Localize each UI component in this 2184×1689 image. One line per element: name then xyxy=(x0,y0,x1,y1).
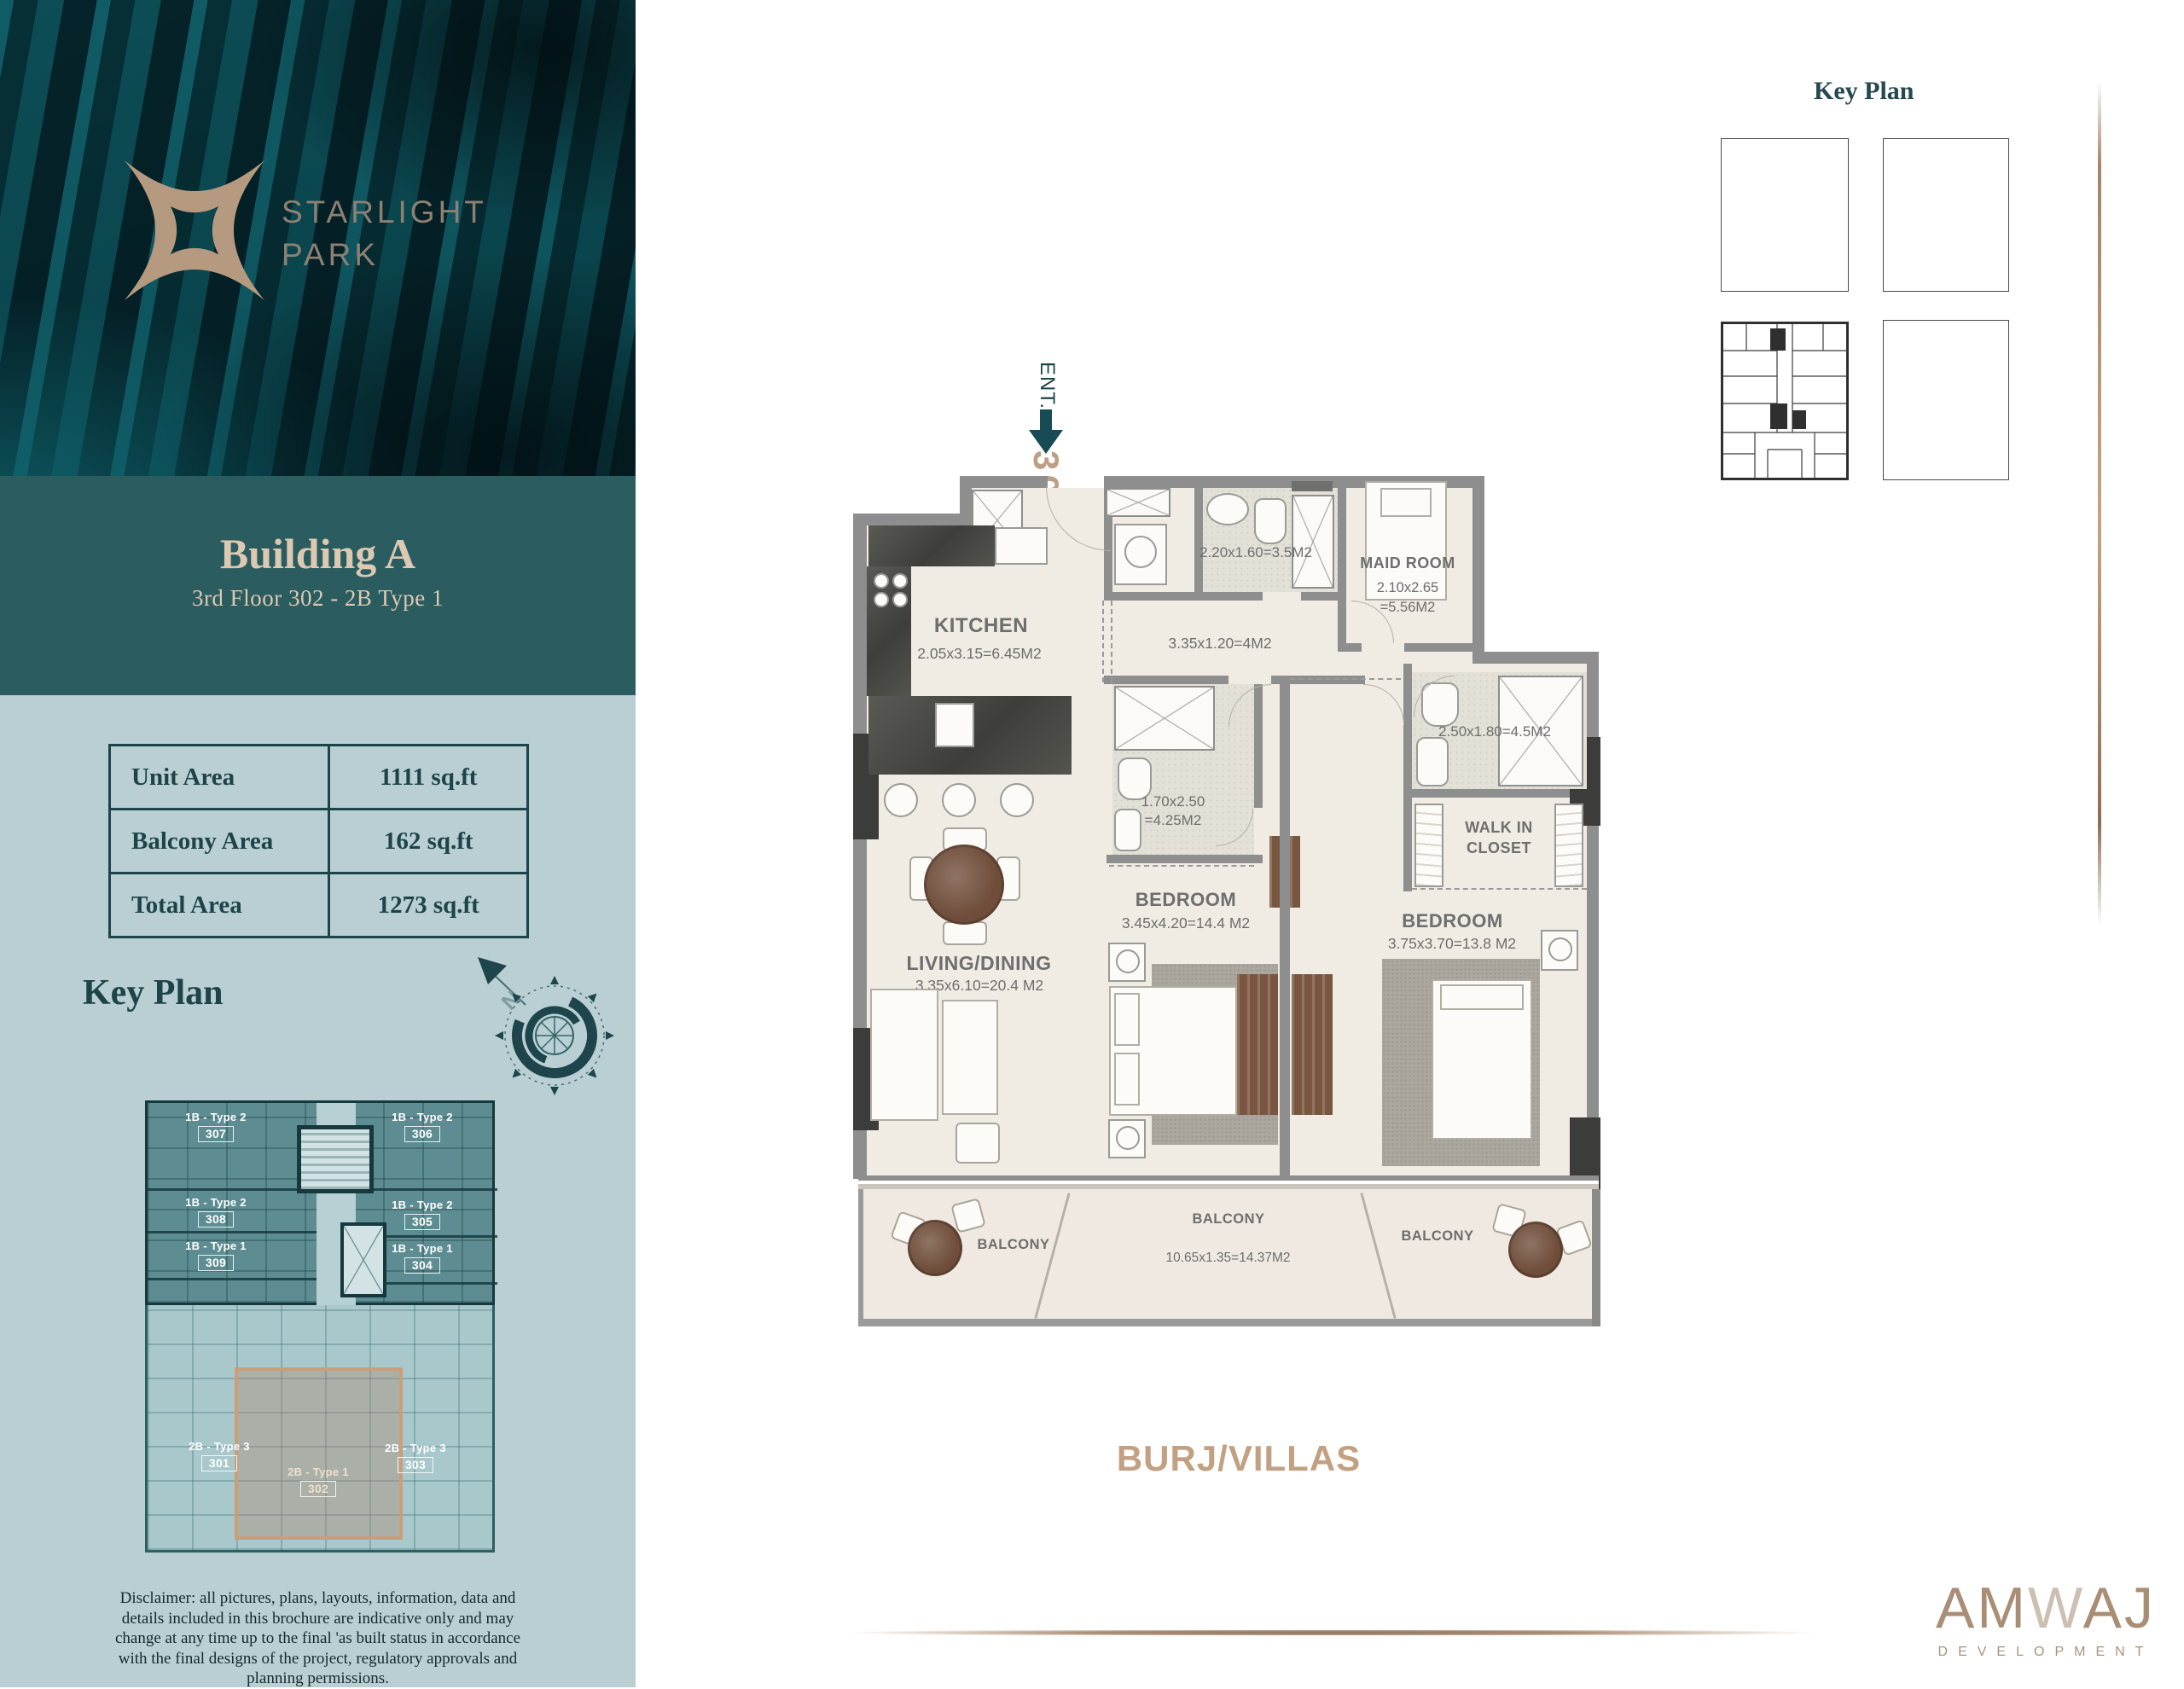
maid-room-dims1: 2.10x2.65 xyxy=(1352,580,1463,596)
wall xyxy=(1472,476,1484,664)
keyplan-wall xyxy=(148,1231,317,1233)
bathroom-top-dims: 2.20x1.60=3.5M2 xyxy=(1188,544,1324,561)
pillow xyxy=(1440,984,1524,1010)
sidebar-keyplan-heading: Key Plan xyxy=(83,972,224,1013)
balcony-center-name: BALCONY xyxy=(1177,1211,1280,1228)
keyplan-unit-308: 1B - Type 2 308 xyxy=(169,1196,263,1228)
wall xyxy=(1403,798,1412,891)
wardrobe xyxy=(1414,804,1443,887)
wardrobe-wood xyxy=(1237,974,1278,1115)
shower-icon xyxy=(1292,495,1334,589)
unit-number: 304 xyxy=(404,1257,440,1274)
wall xyxy=(1104,592,1263,601)
stool xyxy=(1000,783,1034,817)
unit-type: 1B - Type 2 xyxy=(185,1196,247,1209)
pillow xyxy=(1114,1053,1140,1106)
developer-name-part: AM xyxy=(1936,1576,2028,1640)
unit-type: 1B - Type 2 xyxy=(392,1199,453,1211)
dashed-line xyxy=(1111,601,1112,682)
brand-line2: PARK xyxy=(282,234,487,276)
balcony-rail xyxy=(858,1319,1599,1326)
unit-type: 2B - Type 3 xyxy=(385,1442,446,1454)
left-sidebar: STARLIGHT PARK Building A 3rd Floor 302 … xyxy=(0,0,636,1687)
unit-number: 301 xyxy=(201,1455,237,1471)
bedroom1-name: BEDROOM xyxy=(1126,889,1246,911)
compass-north-label: N xyxy=(497,985,526,1014)
unit-number: 305 xyxy=(404,1214,440,1230)
bedroom2-dims: 3.75x3.70=13.8 M2 xyxy=(1375,935,1529,953)
balcony-center-dims: 10.65x1.35=14.37M2 xyxy=(1145,1251,1311,1266)
wall xyxy=(853,514,972,525)
washer-drum xyxy=(1124,536,1157,568)
wall xyxy=(1403,664,1412,798)
hallway-dims: 3.35x1.20=4M2 xyxy=(1152,635,1288,653)
dining-table xyxy=(924,844,1004,925)
area-row-label: Balcony Area xyxy=(110,810,329,874)
keyplan-unit-302: 2B - Type 1 302 xyxy=(271,1466,365,1497)
brand-line1: STARLIGHT xyxy=(282,191,487,234)
keyplan-mini-floorplan xyxy=(1721,322,1849,480)
wall xyxy=(1412,789,1587,798)
right-keyplan-heading: Key Plan xyxy=(1814,77,1914,106)
bathroom-master-dims2: =4.25M2 xyxy=(1122,812,1224,829)
unit-type: 1B - Type 2 xyxy=(185,1111,247,1123)
unit-number: 308 xyxy=(198,1211,234,1228)
keyplan-wall xyxy=(356,1188,497,1191)
keyplan-building-outline-4 xyxy=(1883,320,2009,480)
wall xyxy=(1104,676,1228,684)
star-logo-icon xyxy=(92,128,297,333)
decorative-vertical-rule xyxy=(2098,81,2101,926)
developer-tagline: DEVELOPMENT xyxy=(1916,1645,2175,1660)
closet-shaft xyxy=(1106,488,1170,517)
dining-chair xyxy=(943,921,987,945)
unit-number: 307 xyxy=(198,1126,234,1142)
balcony-rail xyxy=(1592,1189,1600,1326)
developer-name-w: W xyxy=(2028,1576,2083,1640)
sofa-chaise xyxy=(942,1000,998,1115)
wardrobe xyxy=(1554,804,1583,887)
wall xyxy=(960,476,972,525)
kitchen-counter xyxy=(868,525,995,566)
stool xyxy=(942,783,976,817)
dashed-line xyxy=(1102,601,1104,682)
unit-floorplan: ENT. 302 2.20x1.6 xyxy=(853,471,1604,1332)
keyplan-building-active xyxy=(1721,322,1849,480)
wall xyxy=(1280,676,1290,1179)
lamp-icon xyxy=(1116,949,1140,973)
keyplan-unit-309: 1B - Type 1 309 xyxy=(169,1239,263,1271)
keyplan-stair-core xyxy=(297,1125,374,1193)
stove-burner xyxy=(892,592,908,607)
wall xyxy=(1404,643,1472,652)
unit-type: 1B - Type 2 xyxy=(392,1111,453,1123)
living-dining-name: LIVING/DINING xyxy=(904,952,1054,975)
maid-pillow xyxy=(1380,488,1432,517)
unit-number: 309 xyxy=(198,1255,234,1271)
walkin-closet-name1: WALK IN xyxy=(1443,819,1554,837)
wall xyxy=(1194,476,1203,599)
keyplan-building-outline-2 xyxy=(1883,138,2009,292)
kitchen-name: KITCHEN xyxy=(900,614,1062,638)
developer-logo: AMWAJ DEVELOPMENT xyxy=(1916,1575,2175,1660)
keyplan-unit-304: 1B - Type 1 304 xyxy=(375,1242,469,1274)
keyplan-wall xyxy=(148,1188,317,1191)
page-subtitle: 3rd Floor 302 - 2B Type 1 xyxy=(0,585,636,612)
unit-number: 306 xyxy=(404,1126,440,1142)
unit-number: 302 xyxy=(300,1481,336,1497)
sink-icon xyxy=(1206,493,1249,525)
balcony-table xyxy=(908,1220,962,1276)
stove-burner xyxy=(874,573,889,589)
balcony-right-name: BALCONY xyxy=(1386,1228,1489,1245)
wall xyxy=(972,476,1048,488)
door-leaf-wood xyxy=(1290,836,1300,908)
hero-image: STARLIGHT PARK xyxy=(0,0,636,476)
shower-icon xyxy=(1114,686,1215,751)
bathroom-right-dims: 2.50x1.80=4.5M2 xyxy=(1426,723,1563,740)
area-row-value: 162 sq.ft xyxy=(329,810,528,874)
armchair xyxy=(955,1123,1000,1164)
lamp-icon xyxy=(1116,1126,1140,1150)
area-row-value: 1273 sq.ft xyxy=(329,874,528,937)
dashed-line xyxy=(1109,865,1254,867)
unit-type: 1B - Type 1 xyxy=(392,1242,453,1255)
wall xyxy=(1107,855,1263,863)
area-table: Unit Area 1111 sq.ft Balcony Area 162 sq… xyxy=(108,744,529,938)
kitchen-sink xyxy=(935,703,974,747)
bedroom2-name: BEDROOM xyxy=(1391,910,1514,932)
wall xyxy=(1587,652,1599,1179)
table-row: Balcony Area 162 sq.ft xyxy=(110,810,528,874)
keyplan-building-outline-1 xyxy=(1721,138,1849,292)
keyplan-unit-306: 1B - Type 2 306 xyxy=(375,1111,469,1142)
maid-room-name: MAID ROOM xyxy=(1344,554,1472,572)
developer-name-part: AJ xyxy=(2083,1576,2156,1640)
brand-wordmark: STARLIGHT PARK xyxy=(282,191,487,276)
stove-burner xyxy=(892,573,908,589)
door-leaf-wood xyxy=(1269,836,1280,908)
orientation-label: BURJ/VILLAS xyxy=(1094,1438,1384,1479)
dashed-line xyxy=(1290,678,1401,680)
disclaimer-text: Disclaimer: all pictures, plans, layouts… xyxy=(102,1588,533,1689)
unit-type: 2B - Type 1 xyxy=(288,1466,349,1478)
unit-type: 2B - Type 3 xyxy=(189,1440,250,1453)
area-row-label: Unit Area xyxy=(110,746,329,810)
bath-shelf xyxy=(1292,481,1333,491)
developer-name: AMWAJ xyxy=(1916,1575,2175,1641)
area-row-label: Total Area xyxy=(110,874,329,937)
unit-type: 1B - Type 1 xyxy=(185,1239,247,1252)
entrance-label: ENT. xyxy=(1035,362,1059,409)
bedroom1-dims: 3.45x4.20=14.4 M2 xyxy=(1113,914,1258,932)
area-row-value: 1111 sq.ft xyxy=(329,746,528,810)
keyplan-unit-307: 1B - Type 2 307 xyxy=(169,1111,263,1142)
kitchen-cabinet xyxy=(995,527,1048,565)
dashed-line xyxy=(1412,888,1587,890)
wall xyxy=(1301,592,1338,601)
footer-divider xyxy=(708,1630,1955,1635)
walkin-closet-name2: CLOSET xyxy=(1443,839,1554,857)
toilet-icon xyxy=(1254,498,1287,544)
pillow xyxy=(1114,993,1140,1046)
entrance-arrow-icon xyxy=(1040,409,1052,430)
table-row: Total Area 1273 sq.ft xyxy=(110,874,528,937)
balcony-table xyxy=(1508,1222,1563,1278)
keyplan-unit-305: 1B - Type 2 305 xyxy=(375,1199,469,1230)
wardrobe-wood xyxy=(1292,974,1333,1115)
unit-number: 303 xyxy=(398,1457,433,1473)
lamp-icon xyxy=(1548,937,1572,961)
sofa xyxy=(870,989,938,1121)
stove-burner xyxy=(874,592,889,607)
bathtub-icon xyxy=(1416,737,1449,786)
keyplan-wall xyxy=(148,1278,317,1280)
page-title: Building A xyxy=(0,529,636,578)
wall xyxy=(1472,652,1599,664)
balcony-left-name: BALCONY xyxy=(962,1237,1065,1253)
balcony-rail xyxy=(858,1189,863,1326)
stool xyxy=(884,783,918,817)
compass-icon: N xyxy=(471,949,620,1098)
unit-title-band: Building A 3rd Floor 302 - 2B Type 1 xyxy=(0,476,636,695)
wall xyxy=(1346,643,1362,652)
table-row: Unit Area 1111 sq.ft xyxy=(110,746,528,810)
keyplan-unit-303: 2B - Type 3 303 xyxy=(369,1442,462,1473)
sidebar-keyplan-drawing: 1B - Type 2 307 1B - Type 2 306 1B - Typ… xyxy=(145,1100,495,1582)
bathroom-master-dims1: 1.70x2.50 xyxy=(1122,793,1224,810)
keyplan-unit-301: 2B - Type 3 301 xyxy=(172,1440,266,1471)
kitchen-dims: 2.05x3.15=6.45M2 xyxy=(894,645,1065,663)
